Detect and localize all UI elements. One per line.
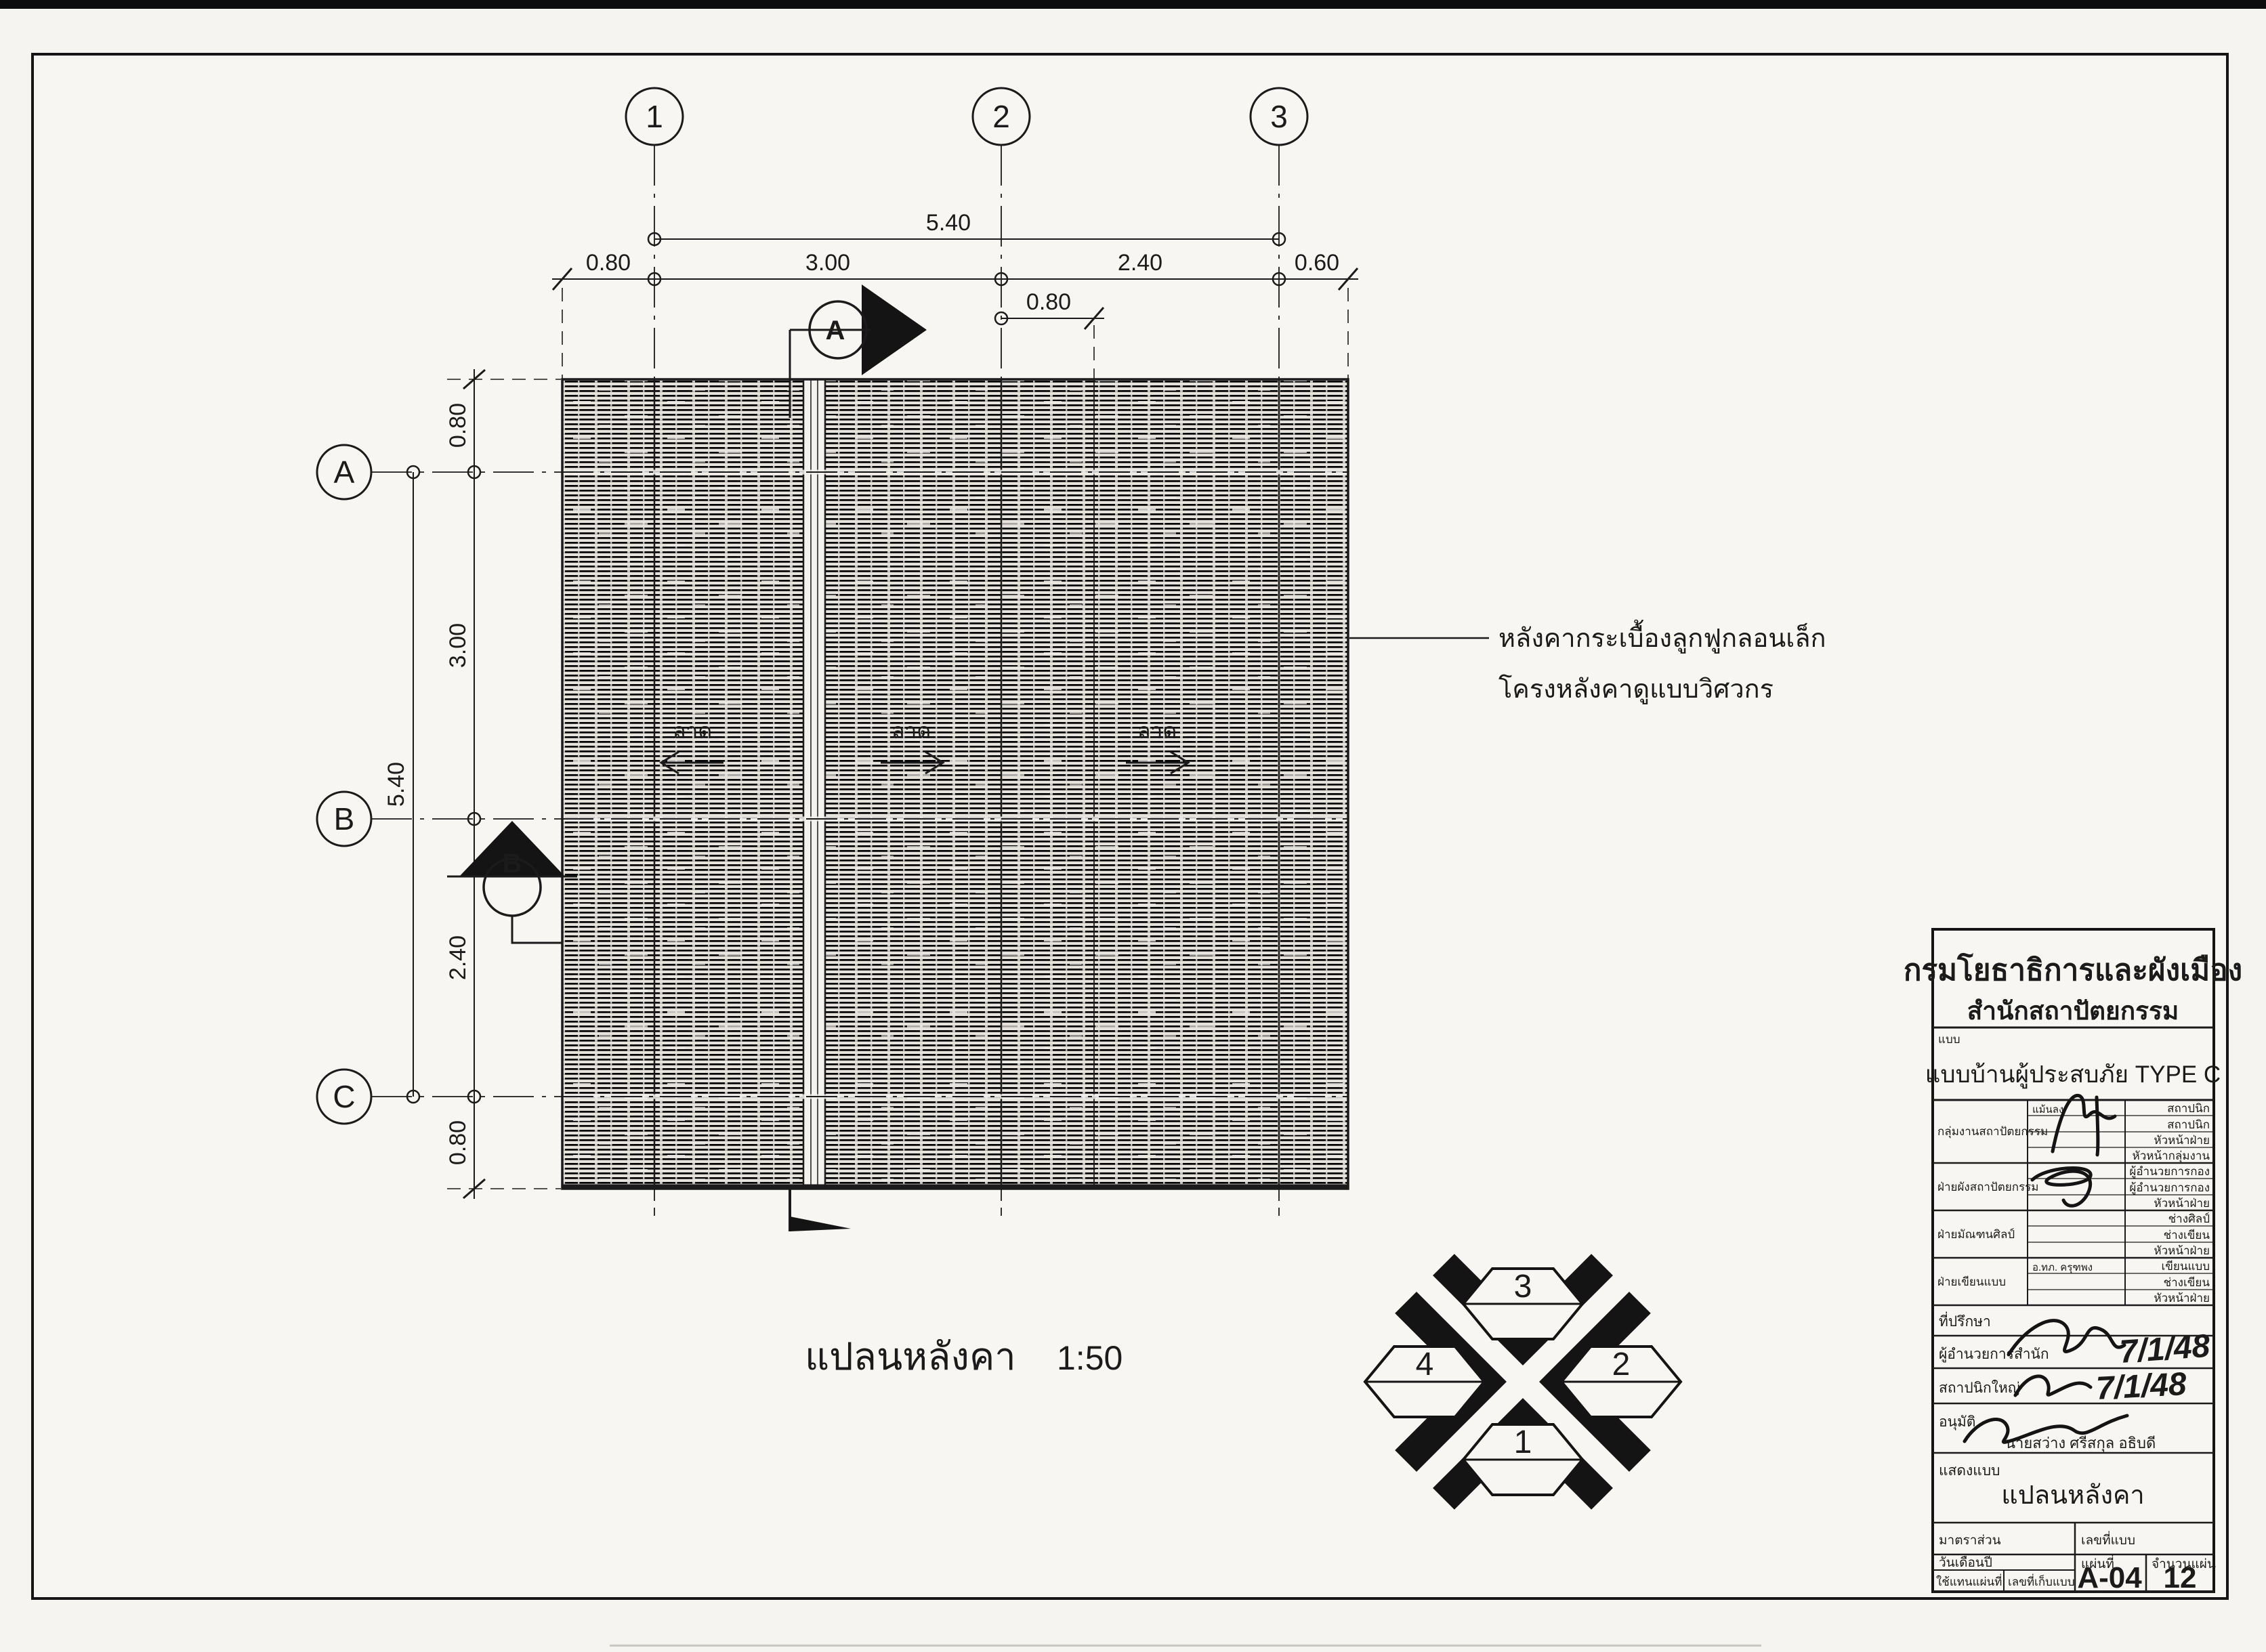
dim-top-2: 3.00 — [805, 250, 850, 276]
orientation-label-top: 3 — [1514, 1269, 1532, 1305]
roof-note-line1: หลังคากระเบื้องลูกฟูกลอนเล็ก — [1498, 619, 1826, 654]
dim-top-3: 2.40 — [1118, 250, 1162, 276]
dim-top-4: 0.60 — [1295, 250, 1339, 276]
sig-group-2-label: ฝ่ายผังสถาปัตยกรรม — [1937, 1181, 2039, 1193]
approver-name: นายสว่าง ศรีสกุล อธิบดี — [2005, 1435, 2156, 1452]
grid-label-c: C — [333, 1079, 355, 1114]
sig-role-3: หัวหน้าฝ่าย — [2154, 1134, 2210, 1147]
file-no-label: เลขที่เก็บแบบ — [2008, 1573, 2075, 1588]
scale-cell-label: มาตราส่วน — [1939, 1533, 2001, 1548]
orientation-label-right: 2 — [1612, 1347, 1631, 1382]
approve-label: อนุมัติ — [1939, 1414, 1975, 1431]
sig-role-8: ช่างศิลป์ — [2168, 1212, 2210, 1225]
consultant-label: ที่ปรึกษา — [1939, 1311, 1991, 1330]
slope-label-left: ลาด — [673, 719, 712, 743]
sig-role-11: เขียนแบบ — [2161, 1260, 2210, 1273]
dim-top-total: 5.40 — [926, 210, 971, 236]
director-label: ผู้อำนวยการสำนัก — [1939, 1347, 2049, 1363]
sig-role-12: ช่างเขียน — [2164, 1276, 2210, 1289]
sheetname-value: แปลนหลังคา — [2001, 1481, 2145, 1510]
plan-title-text: แปลนหลังคา — [805, 1335, 1016, 1378]
dim-top-sub: 0.80 — [1026, 289, 1071, 315]
sig-role-4: หัวหน้ากลุ่มงาน — [2132, 1149, 2210, 1163]
slope-label-mid: ลาด — [891, 719, 931, 743]
sig-role-5: ผู้อำนวยการกอง — [2129, 1165, 2210, 1179]
sig-role-9: ช่างเขียน — [2164, 1229, 2210, 1242]
dim-left-1: 0.80 — [445, 403, 471, 448]
grid-label-2: 2 — [992, 99, 1010, 134]
plan-title: แปลนหลังคา 1:50 — [805, 1335, 1122, 1378]
sig-group-3-label: ฝ่ายมัณฑนศิลป์ — [1937, 1228, 2015, 1241]
sig-group-4-name: อ.ทภ. ครุฑพง — [2032, 1262, 2093, 1274]
director-date: 7/1/48 — [2118, 1328, 2211, 1370]
title-block: กรมโยธาธิการและผังเมือง สำนักสถาปัตยกรรม… — [1904, 929, 2242, 1594]
dim-left-total: 5.40 — [383, 762, 409, 807]
sheetname-label: แสดงแบบ — [1939, 1463, 2000, 1479]
sig-role-2: สถาปนิก — [2167, 1118, 2210, 1131]
sig-group-4-label: ฝ่ายเขียนแบบ — [1937, 1275, 2006, 1288]
total-sheets-value: 12 — [2164, 1561, 2197, 1594]
grid-label-b: B — [334, 801, 355, 836]
chief-architect-label: สถาปนิกใหญ่ — [1939, 1380, 2020, 1396]
section-b-label: B — [503, 849, 522, 878]
grid-label-a: A — [334, 454, 355, 490]
orientation-label-left: 4 — [1416, 1347, 1434, 1382]
section-a-label: A — [826, 316, 845, 345]
dim-left-4: 0.80 — [445, 1120, 471, 1165]
titleblock-project: แบบบ้านผู้ประสบภัย TYPE C — [1925, 1061, 2221, 1088]
date-cell-label: วันเดือนปี — [1939, 1555, 1992, 1570]
roof-plan — [562, 379, 1348, 1189]
grid-label-3: 3 — [1270, 99, 1288, 134]
sig-group-1-label: กลุ่มงานสถาปัตยกรรม — [1937, 1125, 2048, 1139]
slope-label-right: ลาด — [1137, 719, 1177, 743]
drawing-sheet: 1 2 3 A B C 5.40 0.80 3.00 2.40 0.60 — [0, 0, 2266, 1652]
replaces-label: ใช้แทนแผ่นที่ — [1936, 1573, 2002, 1588]
roof-ridge — [803, 379, 825, 1189]
sig-role-7: หัวหน้าฝ่าย — [2154, 1197, 2210, 1210]
titleblock-agency: กรมโยธาธิการและผังเมือง — [1904, 952, 2242, 987]
chief-architect-date: 7/1/48 — [2095, 1366, 2187, 1407]
sig-group-1-name: แม้นลง — [2032, 1104, 2063, 1116]
titleblock-bureau: สำนักสถาปัตยกรรม — [1967, 997, 2179, 1025]
sig-role-13: หัวหน้าฝ่าย — [2154, 1292, 2210, 1305]
dim-top-1: 0.80 — [586, 250, 631, 276]
dim-left-3: 2.40 — [445, 935, 471, 980]
titleblock-form-label: แบบ — [1938, 1033, 1960, 1046]
dim-left-2: 3.00 — [445, 623, 471, 668]
scan-artifact-top — [0, 0, 2266, 9]
roof-hatch-texture — [562, 379, 1348, 1189]
sheet-no-value: A-04 — [2077, 1561, 2142, 1594]
roof-note-line2: โครงหลังคาดูแบบวิศวกร — [1498, 674, 1774, 704]
grid-label-1: 1 — [646, 99, 663, 134]
sig-role-6: ผู้อำนวยการกอง — [2129, 1181, 2210, 1195]
sig-role-1: สถาปนิก — [2167, 1102, 2210, 1115]
drawing-no-label: เลขที่แบบ — [2081, 1531, 2135, 1548]
orientation-label-bottom: 1 — [1514, 1424, 1532, 1460]
plan-scale-text: 1:50 — [1057, 1339, 1122, 1377]
scan-artifact-bottom — [610, 1645, 1761, 1647]
sig-role-10: หัวหน้าฝ่าย — [2154, 1244, 2210, 1257]
